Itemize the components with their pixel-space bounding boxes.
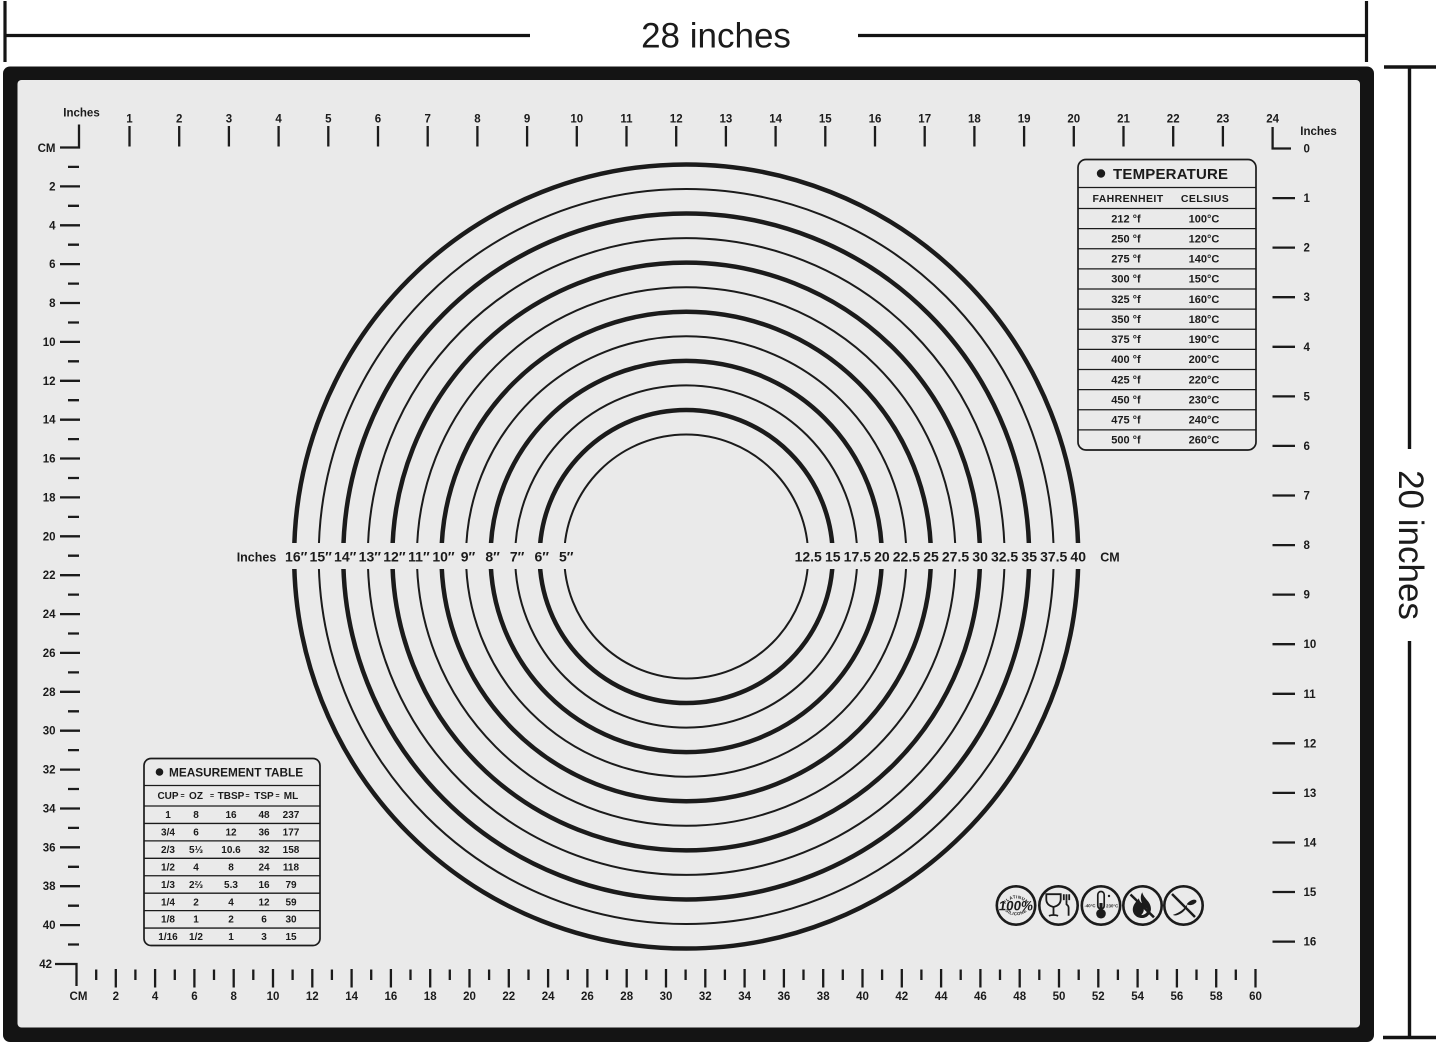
svg-text:38: 38 [817, 991, 830, 1003]
svg-text:28 inches: 28 inches [641, 17, 791, 56]
svg-text:177: 177 [283, 828, 300, 839]
svg-text:1: 1 [1304, 193, 1311, 205]
svg-text:16″: 16″ [285, 549, 308, 565]
svg-text:12: 12 [258, 897, 270, 908]
svg-text:36: 36 [258, 828, 270, 839]
svg-text:20: 20 [43, 531, 56, 543]
svg-text:=: = [210, 793, 214, 800]
svg-text:42: 42 [39, 959, 52, 971]
svg-text:5″: 5″ [559, 549, 574, 565]
svg-text:9″: 9″ [461, 549, 476, 565]
svg-text:CM: CM [1100, 551, 1119, 565]
svg-text:20 inches: 20 inches [1391, 470, 1430, 620]
svg-text:20: 20 [874, 549, 890, 565]
svg-text:OZ: OZ [189, 791, 203, 802]
svg-text:CM: CM [70, 991, 88, 1003]
svg-text:8″: 8″ [485, 549, 500, 565]
svg-text:7: 7 [1304, 491, 1310, 503]
svg-text:48: 48 [258, 810, 270, 821]
svg-text:230°C: 230°C [1189, 395, 1220, 407]
svg-text:14: 14 [345, 991, 358, 1003]
svg-text:425 °f: 425 °f [1111, 374, 1141, 386]
svg-text:12: 12 [670, 114, 683, 126]
svg-text:8: 8 [228, 862, 234, 873]
svg-text:4: 4 [275, 114, 282, 126]
svg-text:24: 24 [1266, 114, 1279, 126]
svg-text:275 °f: 275 °f [1111, 254, 1141, 266]
svg-text:30: 30 [285, 915, 297, 926]
svg-text:18: 18 [424, 991, 437, 1003]
svg-text:237: 237 [283, 810, 300, 821]
svg-text:-40°C: -40°C [1084, 903, 1095, 908]
svg-text:16: 16 [385, 991, 398, 1003]
svg-text:CUP: CUP [157, 791, 178, 802]
svg-text:7: 7 [424, 114, 430, 126]
svg-text:11″: 11″ [408, 549, 430, 565]
svg-text:1/2: 1/2 [189, 932, 203, 943]
svg-text:79: 79 [285, 880, 297, 891]
svg-text:1/4: 1/4 [161, 897, 175, 908]
svg-text:16: 16 [225, 810, 237, 821]
svg-text:300 °f: 300 °f [1111, 274, 1141, 286]
svg-text:44: 44 [935, 991, 948, 1003]
svg-text:1: 1 [165, 810, 171, 821]
svg-text:32: 32 [699, 991, 712, 1003]
svg-text:250 °f: 250 °f [1111, 234, 1141, 246]
svg-text:450 °f: 450 °f [1111, 395, 1141, 407]
svg-text:2: 2 [176, 114, 182, 126]
svg-text:18: 18 [43, 492, 56, 504]
svg-text:13: 13 [1304, 788, 1317, 800]
svg-text:158: 158 [283, 845, 300, 856]
svg-text:30: 30 [972, 549, 988, 565]
svg-text:3: 3 [226, 114, 232, 126]
svg-text:40: 40 [1070, 549, 1086, 565]
svg-text:16: 16 [869, 114, 882, 126]
svg-text:26: 26 [581, 991, 594, 1003]
svg-text:2: 2 [49, 181, 55, 193]
svg-text:1/3: 1/3 [161, 880, 175, 891]
svg-text:MEASUREMENT TABLE: MEASUREMENT TABLE [169, 766, 303, 780]
svg-text:54: 54 [1131, 991, 1144, 1003]
svg-text:10.6: 10.6 [221, 845, 241, 856]
svg-text:38: 38 [43, 881, 56, 893]
svg-text:8: 8 [193, 810, 199, 821]
svg-text:TBSP: TBSP [218, 791, 245, 802]
svg-text:CELSIUS: CELSIUS [1181, 193, 1229, 205]
svg-text:4: 4 [152, 991, 159, 1003]
svg-text:16: 16 [1304, 937, 1317, 949]
svg-text:240°C: 240°C [1189, 415, 1220, 427]
svg-text:7″: 7″ [510, 549, 525, 565]
svg-text:2/3: 2/3 [161, 845, 175, 856]
svg-text:28: 28 [620, 991, 633, 1003]
svg-text:5⅓: 5⅓ [189, 845, 203, 856]
svg-text:230°C: 230°C [1106, 903, 1118, 908]
svg-text:15: 15 [285, 932, 297, 943]
svg-text:3/4: 3/4 [161, 828, 175, 839]
svg-text:=: = [180, 793, 184, 800]
svg-text:24: 24 [43, 609, 56, 621]
svg-text:20: 20 [463, 991, 476, 1003]
svg-text:1: 1 [228, 932, 234, 943]
svg-text:40: 40 [856, 991, 869, 1003]
svg-text:34: 34 [43, 804, 56, 816]
svg-text:22: 22 [1167, 114, 1180, 126]
svg-text:0: 0 [1304, 144, 1310, 156]
svg-text:48: 48 [1013, 991, 1026, 1003]
svg-text:12: 12 [225, 828, 237, 839]
svg-text:=: = [275, 793, 279, 800]
svg-text:16: 16 [258, 880, 270, 891]
svg-text:9: 9 [524, 114, 530, 126]
svg-text:2: 2 [1304, 243, 1310, 255]
svg-text:52: 52 [1092, 991, 1105, 1003]
svg-text:5: 5 [325, 114, 332, 126]
svg-text:40: 40 [43, 920, 56, 932]
svg-text:Inches: Inches [63, 108, 99, 120]
svg-text:1: 1 [193, 915, 199, 926]
svg-text:8: 8 [49, 298, 56, 310]
svg-text:59: 59 [285, 897, 297, 908]
svg-text:18: 18 [968, 114, 981, 126]
svg-text:1/8: 1/8 [161, 915, 175, 926]
svg-text:56: 56 [1171, 991, 1184, 1003]
svg-text:17.5: 17.5 [844, 549, 871, 565]
svg-text:350 °f: 350 °f [1111, 314, 1141, 326]
svg-text:375 °f: 375 °f [1111, 334, 1141, 346]
svg-text:8: 8 [1304, 540, 1311, 552]
svg-text:8: 8 [474, 114, 481, 126]
svg-text:1/2: 1/2 [161, 862, 175, 873]
svg-text:15: 15 [825, 549, 841, 565]
svg-text:6″: 6″ [534, 549, 549, 565]
svg-text:6: 6 [375, 114, 381, 126]
svg-text:36: 36 [778, 991, 791, 1003]
svg-text:4: 4 [49, 220, 56, 232]
svg-text:140°C: 140°C [1189, 254, 1220, 266]
svg-text:180°C: 180°C [1189, 314, 1220, 326]
svg-text:27.5: 27.5 [942, 549, 969, 565]
svg-text:36: 36 [43, 842, 56, 854]
svg-text:2: 2 [228, 915, 234, 926]
svg-text:2: 2 [113, 991, 119, 1003]
svg-text:=: = [245, 793, 249, 800]
svg-text:400 °f: 400 °f [1111, 354, 1141, 366]
svg-text:TSP: TSP [254, 791, 274, 802]
svg-text:24: 24 [258, 862, 270, 873]
svg-text:32: 32 [258, 845, 270, 856]
svg-text:37.5: 37.5 [1040, 549, 1067, 565]
svg-text:120°C: 120°C [1189, 234, 1220, 246]
svg-text:14: 14 [1304, 838, 1317, 850]
svg-text:32: 32 [43, 765, 56, 777]
svg-text:10″: 10″ [432, 549, 455, 565]
svg-text:Inches: Inches [1300, 126, 1336, 138]
svg-text:475 °f: 475 °f [1111, 415, 1141, 427]
svg-text:14″: 14″ [334, 549, 357, 565]
svg-text:12: 12 [306, 991, 319, 1003]
svg-text:160°C: 160°C [1189, 294, 1220, 306]
svg-text:FAHRENHEIT: FAHRENHEIT [1092, 193, 1163, 205]
svg-text:5.3: 5.3 [224, 880, 238, 891]
svg-text:6: 6 [49, 259, 55, 271]
svg-text:150°C: 150°C [1189, 274, 1220, 286]
svg-text:200°C: 200°C [1189, 354, 1220, 366]
svg-text:4: 4 [1304, 342, 1311, 354]
svg-text:46: 46 [974, 991, 987, 1003]
svg-text:260°C: 260°C [1189, 435, 1220, 447]
svg-text:4: 4 [193, 862, 199, 873]
svg-text:9: 9 [1304, 590, 1310, 602]
svg-text:11: 11 [620, 114, 633, 126]
svg-text:1/16: 1/16 [158, 932, 178, 943]
svg-text:13: 13 [720, 114, 733, 126]
svg-text:100%: 100% [998, 898, 1034, 913]
svg-text:12: 12 [43, 376, 56, 388]
svg-text:26: 26 [43, 648, 56, 660]
svg-text:23: 23 [1217, 114, 1230, 126]
svg-text:6: 6 [191, 991, 197, 1003]
svg-text:17: 17 [918, 114, 931, 126]
svg-text:60: 60 [1249, 991, 1262, 1003]
svg-text:30: 30 [43, 726, 56, 738]
svg-text:5: 5 [1304, 391, 1311, 403]
svg-text:6: 6 [261, 915, 267, 926]
svg-text:22: 22 [502, 991, 515, 1003]
svg-text:212 °f: 212 °f [1111, 213, 1141, 225]
svg-text:35: 35 [1021, 549, 1037, 565]
svg-text:3: 3 [1304, 292, 1310, 304]
svg-text:58: 58 [1210, 991, 1223, 1003]
svg-text:19: 19 [1018, 114, 1031, 126]
svg-text:30: 30 [660, 991, 673, 1003]
svg-text:16: 16 [43, 454, 56, 466]
svg-text:10: 10 [1304, 639, 1317, 651]
svg-text:42: 42 [895, 991, 908, 1003]
svg-text:10: 10 [267, 991, 280, 1003]
svg-text:325 °f: 325 °f [1111, 294, 1141, 306]
svg-text:8: 8 [230, 991, 237, 1003]
svg-text:220°C: 220°C [1189, 374, 1220, 386]
svg-text:21: 21 [1117, 114, 1130, 126]
svg-text:32.5: 32.5 [991, 549, 1018, 565]
svg-text:2⅔: 2⅔ [189, 880, 203, 891]
svg-text:6: 6 [1304, 441, 1310, 453]
svg-text:CM: CM [38, 143, 56, 155]
svg-text:TEMPERATURE: TEMPERATURE [1113, 166, 1228, 183]
svg-text:14: 14 [43, 415, 56, 427]
svg-text:13″: 13″ [359, 549, 382, 565]
svg-text:20: 20 [1067, 114, 1080, 126]
svg-text:12.5: 12.5 [795, 549, 822, 565]
svg-text:1: 1 [126, 114, 133, 126]
svg-text:ML: ML [284, 791, 298, 802]
svg-text:34: 34 [738, 991, 751, 1003]
svg-text:25: 25 [923, 549, 939, 565]
svg-text:15: 15 [819, 114, 832, 126]
svg-text:Inches: Inches [237, 551, 277, 565]
svg-text:22.5: 22.5 [893, 549, 920, 565]
svg-text:3: 3 [261, 932, 267, 943]
svg-text:118: 118 [283, 862, 300, 873]
svg-text:15: 15 [1304, 887, 1317, 899]
svg-text:11: 11 [1304, 689, 1317, 701]
svg-text:10: 10 [43, 337, 56, 349]
svg-text:100°C: 100°C [1189, 213, 1220, 225]
svg-text:190°C: 190°C [1189, 334, 1220, 346]
svg-text:10: 10 [570, 114, 583, 126]
svg-text:50: 50 [1053, 991, 1066, 1003]
svg-text:15″: 15″ [310, 549, 333, 565]
svg-text:14: 14 [769, 114, 782, 126]
svg-text:6: 6 [193, 828, 199, 839]
svg-text:500 °f: 500 °f [1111, 435, 1141, 447]
svg-text:2: 2 [193, 897, 199, 908]
svg-text:24: 24 [542, 991, 555, 1003]
svg-text:4: 4 [228, 897, 234, 908]
svg-text:12: 12 [1304, 738, 1317, 750]
svg-text:12″: 12″ [383, 549, 406, 565]
svg-text:28: 28 [43, 687, 56, 699]
svg-text:22: 22 [43, 570, 56, 582]
